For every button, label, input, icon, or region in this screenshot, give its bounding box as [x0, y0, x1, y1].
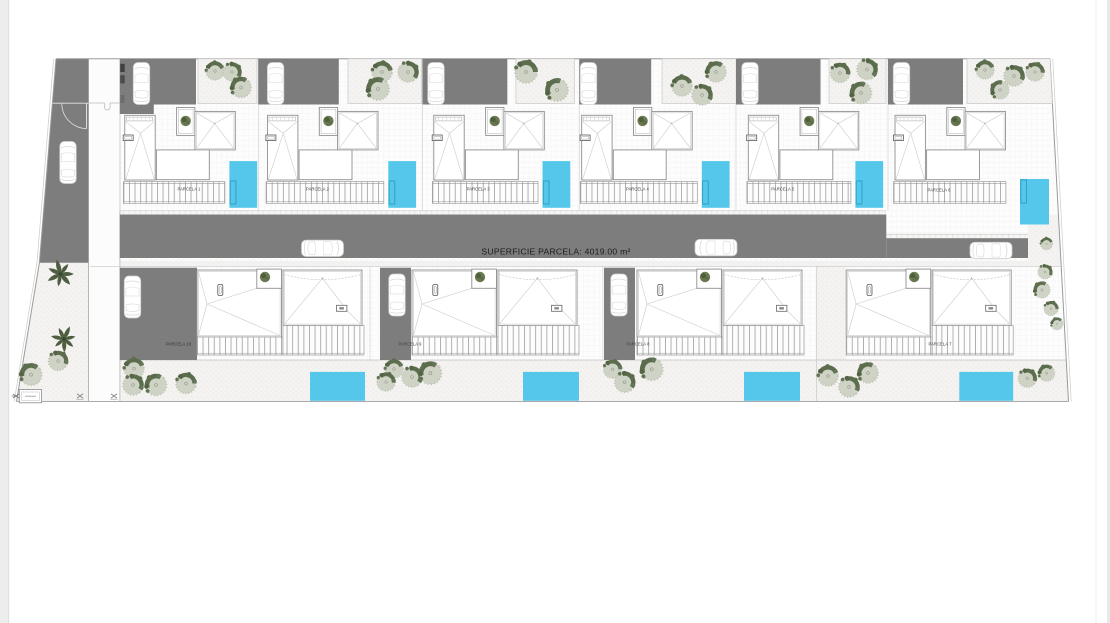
svg-text:PARCELA 9: PARCELA 9: [399, 342, 423, 347]
svg-text:PARCELA 7: PARCELA 7: [929, 342, 953, 347]
svg-text:PARCELA 5: PARCELA 5: [771, 186, 795, 191]
svg-text:PARCELA 3: PARCELA 3: [467, 186, 491, 191]
svg-text:PARCELA 8: PARCELA 8: [627, 342, 651, 347]
svg-text:PARCELA 1: PARCELA 1: [178, 186, 202, 191]
svg-text:PARCELA 4: PARCELA 4: [626, 186, 650, 191]
svg-text:SUPERFICIE PARCELA: 4019.00 m²: SUPERFICIE PARCELA: 4019.00 m²: [481, 246, 630, 256]
svg-text:PARCELA 10: PARCELA 10: [166, 342, 192, 347]
svg-text:PARCELA 2: PARCELA 2: [306, 186, 330, 191]
svg-text:PARCELA 6: PARCELA 6: [928, 187, 952, 192]
